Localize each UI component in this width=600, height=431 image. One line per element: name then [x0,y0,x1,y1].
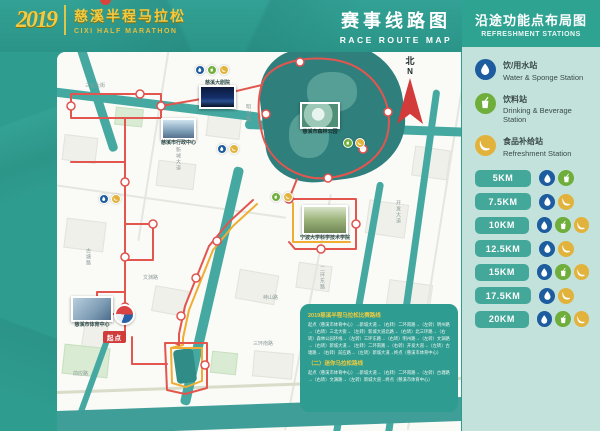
panel-header: 沿途功能点布局图 REFRESHMENT STATIONS [462,0,600,47]
water-drop-icon [537,264,552,280]
stations-list: 5KM7.5KM10KM12.5KM15KM17.5KM20KM [475,170,592,328]
logo-divider [64,5,66,35]
station-km-pill: 12.5KM [475,240,531,257]
banana-icon [574,217,589,233]
compass: 北 N [395,54,425,124]
street-label: 明州路 [245,104,252,122]
banana-icon [283,192,293,202]
drink-cup-icon [271,192,281,202]
drink-cup-icon [555,217,570,233]
station-row: 15KM [475,264,592,281]
landmark-caption: 慈溪市体育中心 [74,321,109,328]
street-label: 三环南路 [253,340,273,347]
landmark-caption: 慈溪大剧院 [205,79,230,86]
station-km-pill: 20KM [475,311,529,328]
station-row: 17.5KM [475,287,592,304]
banana-icon [574,264,589,280]
station-row: 7.5KM [475,193,592,210]
drink-cup-icon [207,65,217,75]
logo-year: 2019 [16,7,56,34]
water-drop-icon [539,170,555,186]
legend-item-food: 食品补给站 Refreshment Station [475,135,592,158]
station-km-pill: 10KM [475,217,529,234]
legend-label-cn: 饮/用水站 [503,60,583,71]
landmark-photo-admin-center: 慈溪市行政中心 [161,118,196,140]
route-description-title-2: （二）迷你马拉松路线 [308,359,450,367]
water-drop-icon [537,217,552,233]
route-description-body-2: 起点（慈溪市体育中心）→新城大道→（右转）二环南路→（左转）古塘路→（右转）文渊… [308,369,450,383]
legend-label-cn: 饮料站 [503,94,592,105]
water-drop-icon [99,194,109,204]
water-drop-icon [475,59,496,80]
race-poster: 2019 慈溪半程马拉松 CIXI HALF MARATHON 赛事线路图 RA… [0,0,600,431]
water-drop-icon [539,241,555,257]
street-label: 新城大道 [175,147,182,171]
banana-icon [475,135,496,156]
route-description-body-1: 起点（慈溪市体育中心）→新城大道→（右转）二环南路→（左转）明州路→（右转）三北… [308,321,450,356]
street-label: 开发大道 [395,200,402,224]
banana-icon [558,288,574,304]
legend-label-en: Refreshment Station [503,149,571,158]
station-cluster [99,194,121,204]
refreshment-panel: 沿途功能点布局图 REFRESHMENT STATIONS 饮/用水站 Wate… [462,0,600,431]
event-logo: 2019 慈溪半程马拉松 CIXI HALF MARATHON [16,5,186,35]
banana-icon [558,194,574,210]
landmark-caption: 慈溪市行政中心 [161,139,196,146]
legend-item-drink: 饮料站 Drinking & Beverage Station [475,93,592,125]
start-badge: 起点 [103,331,126,343]
street-label: 前应路 [73,370,88,377]
drink-cup-icon [343,138,353,148]
panel-title-cn: 沿途功能点布局图 [475,10,587,29]
street-label: 二环东路 [319,266,326,290]
north-label-en: N [395,67,425,76]
banana-icon [111,194,121,204]
water-drop-icon [537,311,552,327]
landmark-caption: 宁波大学科学技术学院 [300,234,350,241]
event-title-cn: 慈溪半程马拉松 [74,6,186,26]
drink-cup-icon [558,170,574,186]
north-arrow-icon [397,78,423,124]
route-map-title: 赛事线路图 RACE ROUTE MAP [335,7,457,45]
station-cluster [271,192,293,202]
north-label-cn: 北 [395,54,425,67]
landmark-caption: 慈溪市森林公园 [302,128,337,135]
water-drop-icon [217,144,227,154]
station-row: 20KM [475,311,592,328]
water-drop-icon [539,194,555,210]
station-row: 10KM [475,217,592,234]
route-map: 慈溪大剧院 慈溪市行政中心 慈溪市森林公园 宁波大学科学技术学院 慈溪市体育中心… [57,52,461,431]
banana-icon [229,144,239,154]
route-map-title-cn: 赛事线路图 [335,7,457,33]
station-cluster [217,144,239,154]
landmark-photo-university: 宁波大学科学技术学院 [302,205,348,235]
banana-icon [574,311,589,327]
drink-cup-icon [475,93,496,114]
start-emblem [114,304,135,325]
landmark-photo-sports-center: 慈溪市体育中心 [71,296,113,322]
station-row: 12.5KM [475,240,592,257]
water-drop-icon [195,65,205,75]
drink-cup-icon [555,311,570,327]
left-margin-art [0,52,57,431]
legend-label-cn: 食品补给站 [503,136,571,147]
station-km-pill: 15KM [475,264,529,281]
station-cluster [195,65,229,75]
station-km-pill: 17.5KM [475,287,531,304]
route-description-box: 2019慈溪半程马拉松比赛路线 起点（慈溪市体育中心）→新城大道→（右转）二环南… [300,304,458,412]
station-km-pill: 7.5KM [475,193,531,210]
street-label: 文渊路 [143,274,158,281]
legend-label-en: Drinking & Beverage Station [503,106,592,124]
street-label: 峙山路 [263,294,278,301]
legend-item-water: 饮/用水站 Water & Sponge Station [475,59,592,82]
route-map-title-en: RACE ROUTE MAP [335,35,457,45]
banana-icon [355,138,365,148]
station-km-pill: 5KM [475,170,531,187]
water-drop-icon [539,288,555,304]
event-title-en: CIXI HALF MARATHON [74,28,186,35]
street-label: 古塘路 [85,248,92,266]
legend-label-en: Water & Sponge Station [503,73,583,82]
header-band: 2019 慈溪半程马拉松 CIXI HALF MARATHON 赛事线路图 RA… [0,0,462,52]
route-description-title-1: 2019慈溪半程马拉松比赛路线 [308,311,450,319]
banana-icon [219,65,229,75]
station-row: 5KM [475,170,592,187]
landmark-photo-forest-park: 慈溪市森林公园 [300,102,340,129]
panel-body: 饮/用水站 Water & Sponge Station 饮料站 Drinkin… [462,47,600,328]
panel-title-en: REFRESHMENT STATIONS [481,31,581,38]
banana-icon [558,241,574,257]
street-label: 三北大街 [85,82,105,89]
drink-cup-icon [555,264,570,280]
landmark-photo-theater: 慈溪大剧院 [199,85,236,109]
station-cluster [343,138,365,148]
